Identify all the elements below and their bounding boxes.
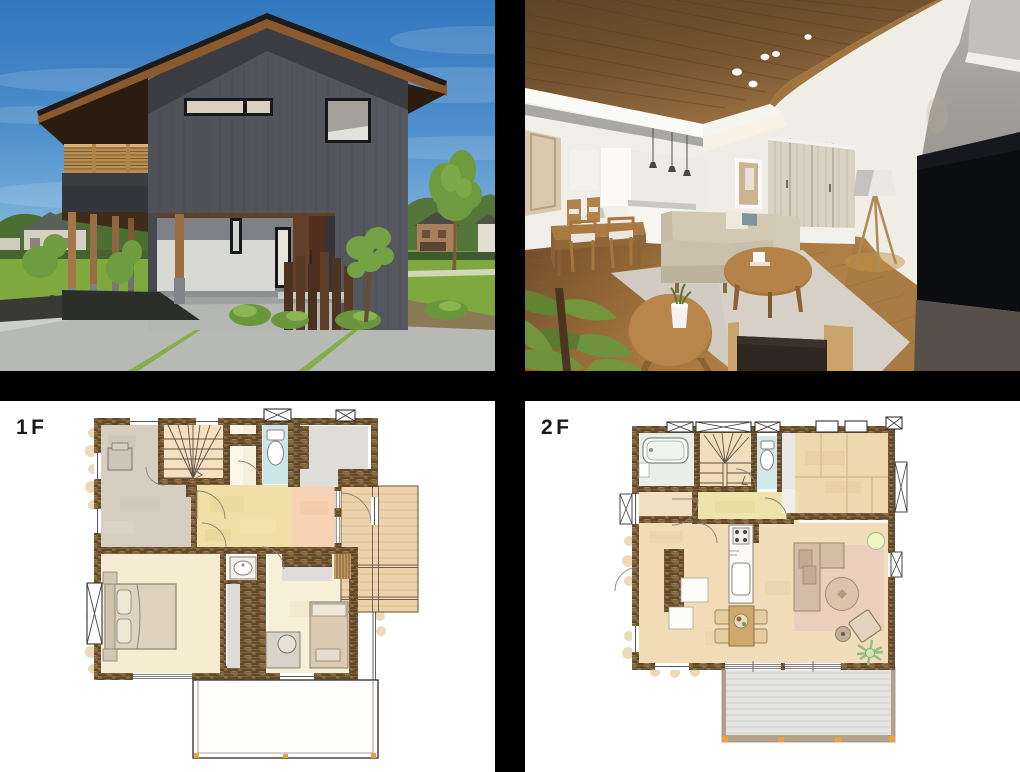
svg-text:2F: 2F [541,416,573,439]
svg-text:1F: 1F [16,416,48,439]
